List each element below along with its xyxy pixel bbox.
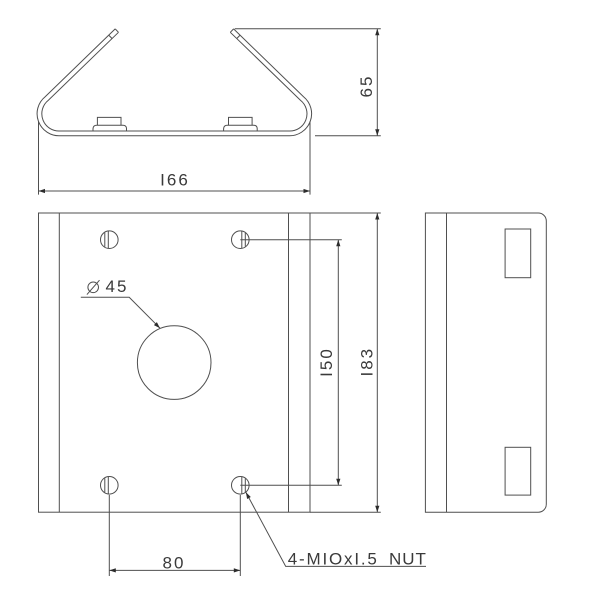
svg-text:I66: I66 xyxy=(160,171,190,190)
svg-text:I50: I50 xyxy=(317,347,336,377)
svg-text:80: 80 xyxy=(163,553,186,572)
svg-text:I83: I83 xyxy=(358,347,377,377)
svg-text:65: 65 xyxy=(357,75,376,98)
svg-text:45: 45 xyxy=(106,277,129,296)
svg-text:NUT: NUT xyxy=(389,549,427,568)
svg-text:4-MIOxI.5: 4-MIOxI.5 xyxy=(288,549,379,568)
